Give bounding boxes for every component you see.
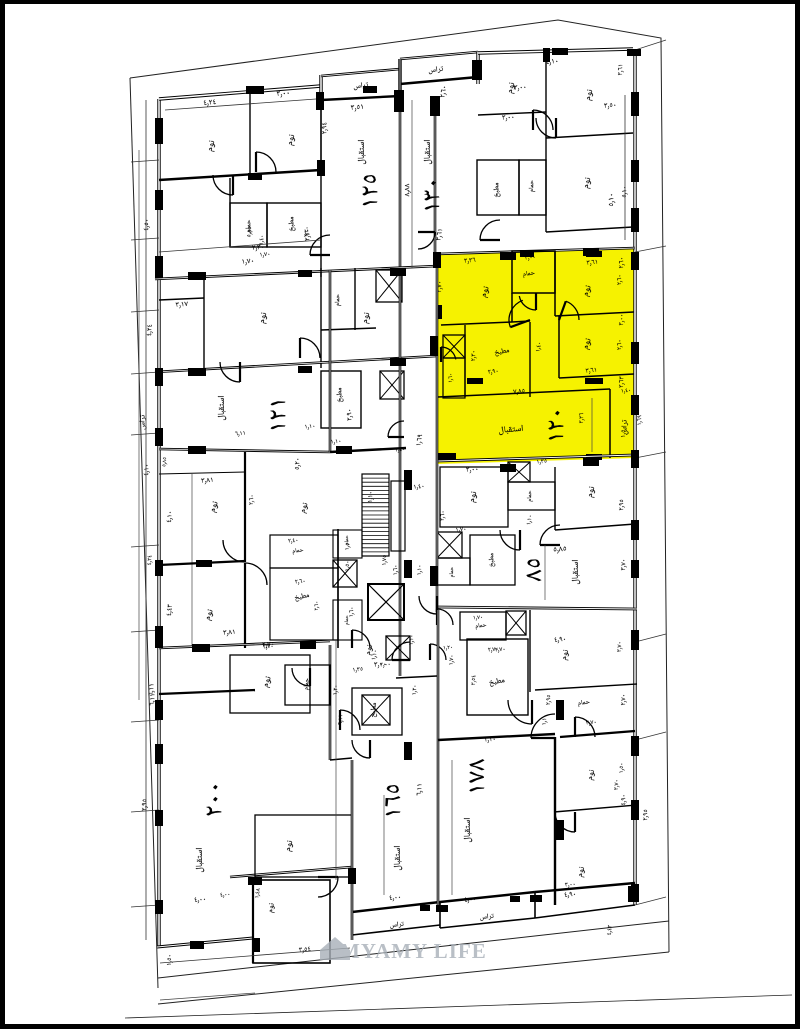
svg-text:MYAMY LIFE: MYAMY LIFE: [340, 939, 487, 963]
